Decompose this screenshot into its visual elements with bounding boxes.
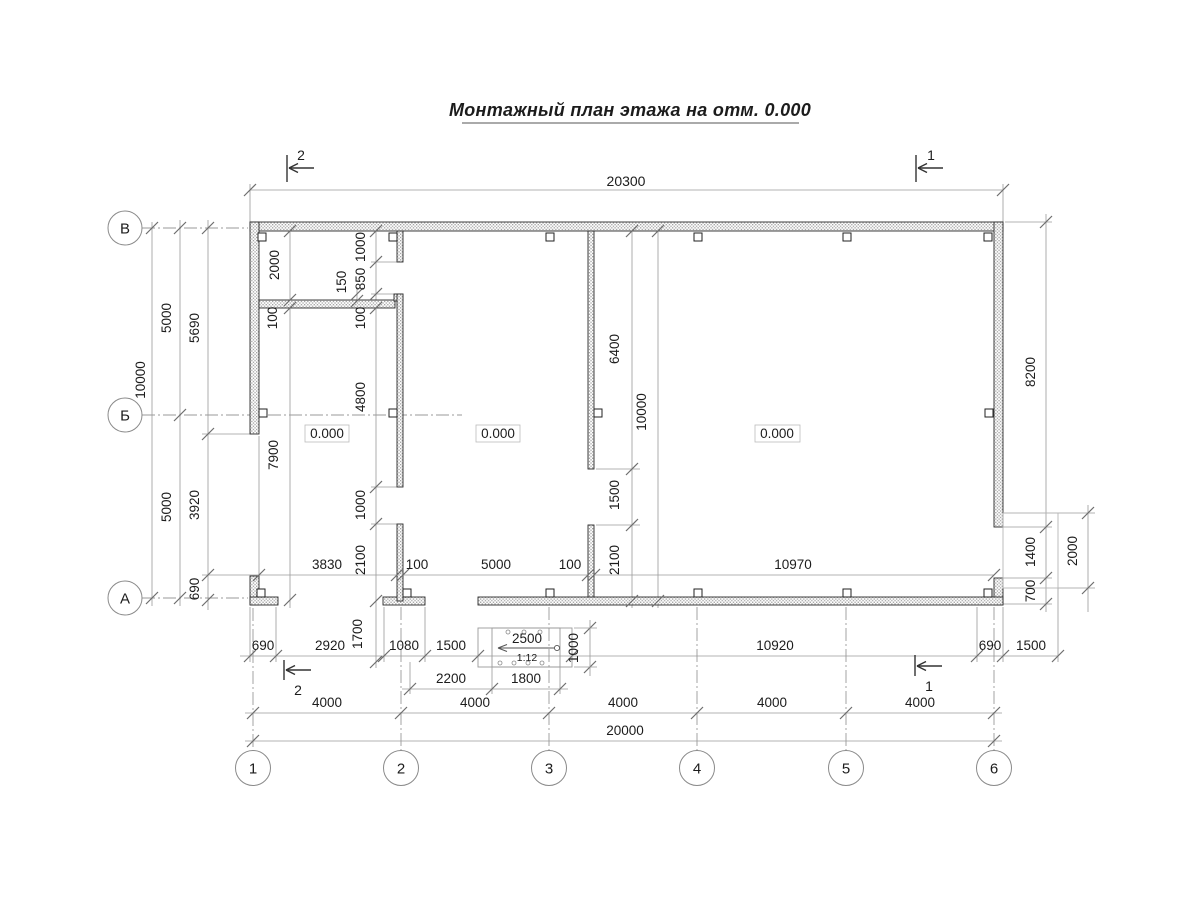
dim-1500-b: 1500 — [436, 638, 466, 653]
wall-top — [250, 222, 1003, 231]
wall-right-upper — [994, 222, 1003, 527]
axis-col-4-label: 4 — [693, 761, 701, 778]
axis-col-3-label: 3 — [545, 761, 553, 778]
dim-3830: 3830 — [312, 557, 342, 572]
ramp-slope-label: 1:12 — [517, 652, 538, 664]
dim-5000-int: 5000 — [481, 557, 511, 572]
elevation-room-2: 0.000 — [481, 426, 515, 441]
dim-5000-vb: 5000 — [159, 303, 174, 333]
dim-10970: 10970 — [774, 557, 812, 572]
elevation-room-1: 0.000 — [310, 426, 344, 441]
section-marker-1-top: 1 — [916, 147, 943, 182]
dim-100-a: 100 — [406, 557, 429, 572]
dim-4000-3: 4000 — [608, 695, 638, 710]
dim-10920: 10920 — [756, 638, 794, 653]
dim-1700: 1700 — [350, 619, 365, 649]
wall-left-corner-base — [250, 597, 278, 605]
dimension-ticks — [146, 184, 1094, 747]
axis-col-1-label: 1 — [249, 761, 257, 778]
elevation-marks: 0.000 0.000 0.000 — [305, 425, 800, 442]
dim-20000: 20000 — [606, 723, 644, 738]
dim-3920: 3920 — [187, 490, 202, 520]
drawing-title: Монтажный план этажа на отм. 0.000 — [449, 100, 811, 120]
wall-left-upper — [250, 222, 259, 434]
section-marker-2-bottom: 2 — [284, 660, 311, 698]
dim-2000-landing: 2000 — [1065, 536, 1080, 566]
partition-2-upper — [588, 231, 594, 469]
axis-col-5-label: 5 — [842, 761, 850, 778]
dim-700: 700 — [1023, 580, 1038, 603]
dim-labels-horizontal: 20300 3830 100 5000 100 10970 690 2920 1… — [252, 173, 1046, 738]
dim-10000-int: 10000 — [634, 393, 649, 431]
wall-bottom-segment-1 — [383, 597, 425, 605]
dimension-lines — [152, 184, 1095, 741]
dim-1500-door: 1500 — [607, 480, 622, 510]
dim-1400: 1400 — [1023, 537, 1038, 567]
dim-690-bl: 690 — [252, 638, 275, 653]
dim-1500-br: 1500 — [1016, 638, 1046, 653]
partition-1-stub — [397, 231, 403, 262]
dim-4000-1: 4000 — [312, 695, 342, 710]
partition-1-lower — [397, 524, 403, 601]
dim-4000-5: 4000 — [905, 695, 935, 710]
axis-row-a-label: А — [120, 591, 130, 608]
section-2-bottom-label: 2 — [294, 682, 302, 698]
dim-8200: 8200 — [1023, 357, 1038, 387]
dim-100-b: 100 — [559, 557, 582, 572]
axis-row-b-label: Б — [120, 408, 130, 425]
dim-1000-ramp: 1000 — [566, 633, 581, 663]
axis-col-6-label: 6 — [990, 761, 998, 778]
dim-2920: 2920 — [315, 638, 345, 653]
dim-4800: 4800 — [353, 382, 368, 412]
section-1-top-label: 1 — [927, 147, 935, 163]
dim-150: 150 — [334, 271, 349, 294]
entrance-ramp: 2500 1:12 — [478, 628, 572, 667]
partition-2-lower — [588, 525, 594, 597]
ramp-length-label: 2500 — [512, 631, 542, 646]
dim-6400: 6400 — [607, 334, 622, 364]
dim-5000-ba: 5000 — [159, 492, 174, 522]
dim-1000-stub: 1000 — [353, 232, 368, 262]
dim-690-left: 690 — [187, 578, 202, 601]
floor-plan-drawing: Монтажный план этажа на отм. 0.000 — [0, 0, 1200, 900]
axis-col-2-label: 2 — [397, 761, 405, 778]
dim-10000-left: 10000 — [133, 361, 148, 399]
dim-7900: 7900 — [266, 440, 281, 470]
section-2-top-label: 2 — [297, 147, 305, 163]
dim-690-br: 690 — [979, 638, 1002, 653]
drawing-sheet: Монтажный план этажа на отм. 0.000 — [0, 0, 1200, 900]
dim-100-room: 100 — [265, 307, 280, 330]
dim-2100-p1: 2100 — [353, 545, 368, 575]
section-marker-1-bottom: 1 — [915, 655, 942, 694]
partition-1-mid — [397, 294, 403, 487]
elevation-room-3: 0.000 — [760, 426, 794, 441]
dim-1800: 1800 — [511, 671, 541, 686]
dim-20300: 20300 — [607, 173, 646, 189]
wall-bottom-segment-2 — [478, 597, 1003, 605]
dim-100-p1: 100 — [353, 307, 368, 330]
section-1-bottom-label: 1 — [925, 678, 933, 694]
axis-row-v-label: В — [120, 221, 130, 238]
dim-2200: 2200 — [436, 671, 466, 686]
dim-850: 850 — [353, 268, 368, 291]
dim-1000-door1: 1000 — [353, 490, 368, 520]
ramp-arrow-origin — [554, 645, 559, 650]
dim-4000-4: 4000 — [757, 695, 787, 710]
section-marker-2-top: 2 — [287, 147, 314, 182]
dim-5690: 5690 — [187, 313, 202, 343]
dim-1080: 1080 — [389, 638, 419, 653]
dim-2000-room: 2000 — [267, 250, 282, 280]
dim-4000-2: 4000 — [460, 695, 490, 710]
dim-2100-p2: 2100 — [607, 545, 622, 575]
axis-bubbles: В Б А 1 2 3 4 5 6 — [108, 211, 1012, 786]
